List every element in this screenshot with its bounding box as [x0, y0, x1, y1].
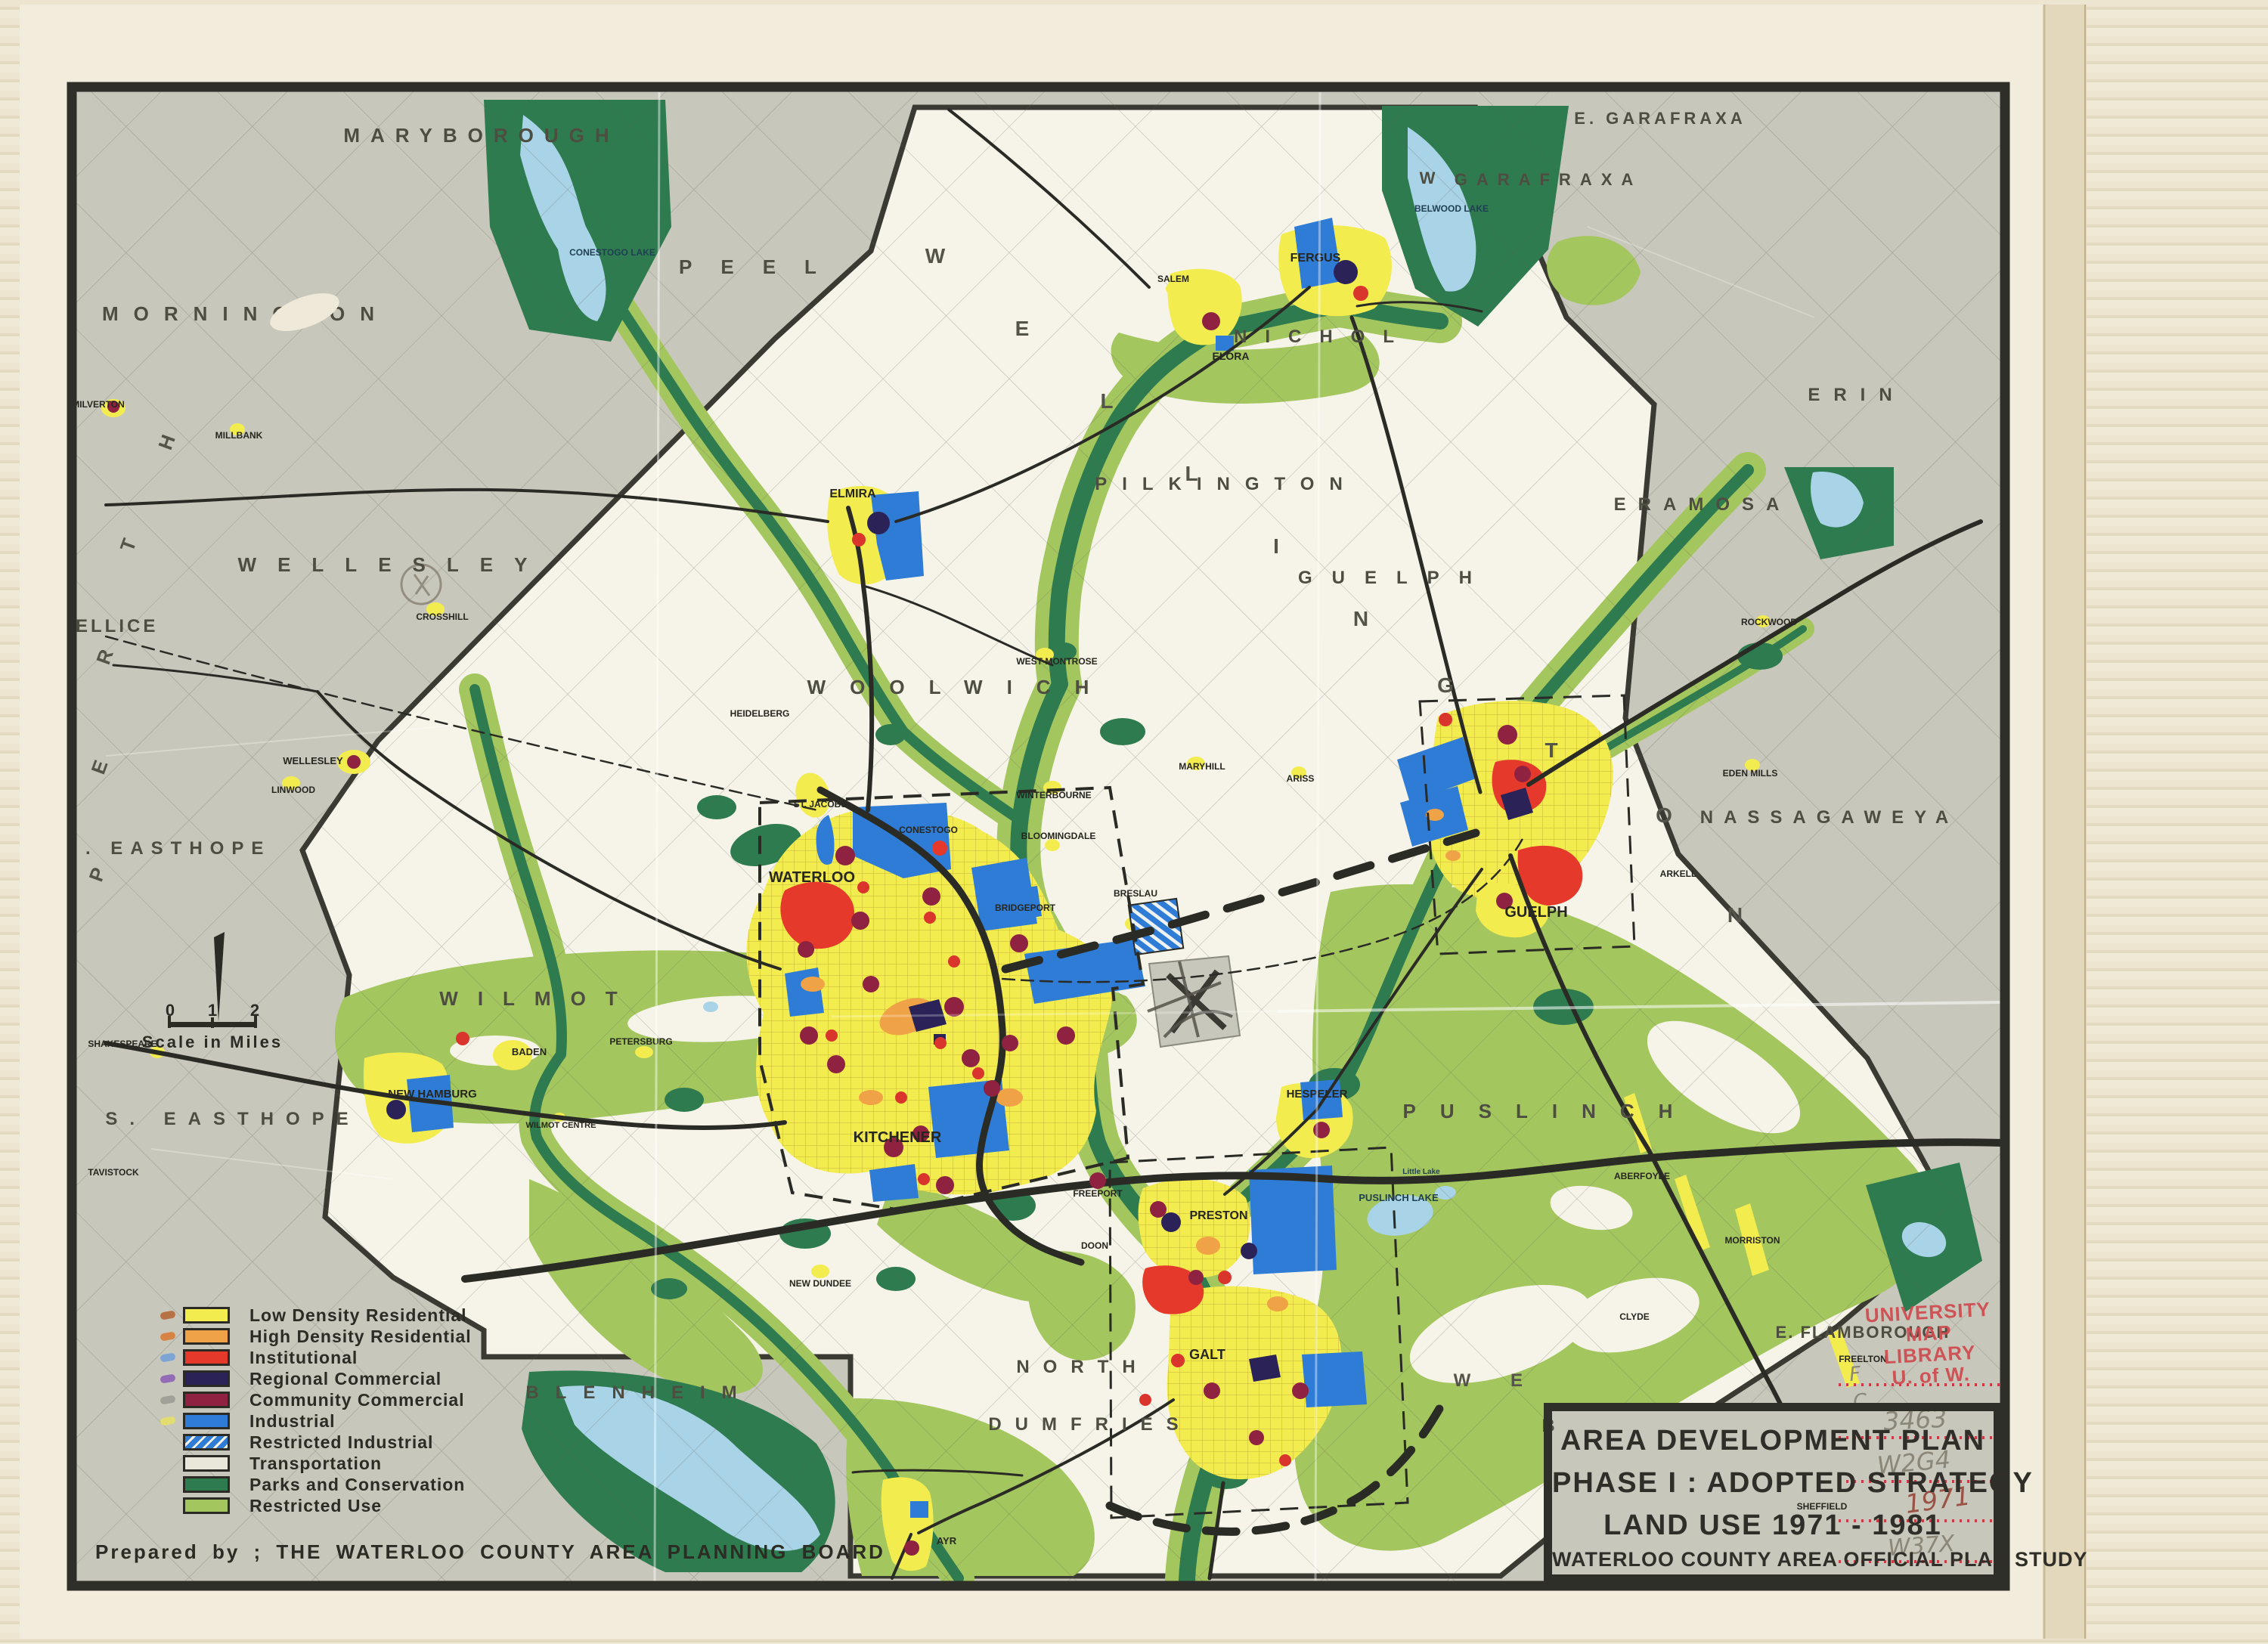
place-label: WINTERBOURNE	[1016, 790, 1091, 800]
legend-item: Restricted Industrial	[160, 1432, 472, 1453]
legend-swatch	[183, 1328, 230, 1345]
title-line-3: LAND USE 1971 - 1981	[1552, 1509, 1994, 1542]
place-label: CONESTOGO	[899, 825, 958, 835]
place-label: ARKELL	[1660, 868, 1697, 879]
place-label: MILLBANK	[215, 430, 263, 441]
township-label: NORTH	[1016, 1357, 1148, 1377]
place-label: HEIDELBERG	[730, 708, 790, 719]
legend-label: Restricted Industrial	[249, 1432, 433, 1453]
crayon-tick	[160, 1310, 175, 1320]
place-label: MILVERTON	[72, 399, 125, 410]
water-label: PUSLINCH LAKE	[1359, 1192, 1439, 1203]
place-label: BLOOMINGDALE	[1021, 831, 1096, 841]
crayon-tick	[160, 1416, 175, 1426]
legend-label: Restricted Use	[249, 1496, 382, 1516]
place-label: WATERLOO	[769, 869, 855, 886]
prepared-by: Prepared by ; THE WATERLOO COUNTY AREA P…	[95, 1540, 885, 1564]
legend-label: Low Density Residential	[249, 1305, 467, 1326]
place-label: MORRISTON	[1724, 1235, 1780, 1246]
library-stamp: UNIVERSITY MAP LIBRARY U. of W.	[1859, 1298, 2000, 1389]
place-label: GALT	[1189, 1347, 1225, 1362]
place-label: WELLESLEY	[283, 755, 343, 766]
place-label: CROSSHILL	[416, 611, 468, 622]
legend-label: Industrial	[249, 1411, 336, 1432]
township-label: DUMFRIES	[988, 1414, 1191, 1435]
legend-item: High Density Residential	[160, 1326, 472, 1347]
paper-fold-strip	[2044, 5, 2087, 1639]
place-label: BRIDGEPORT	[995, 902, 1056, 913]
place-label: AYR	[937, 1535, 957, 1546]
scale-tick: 0	[166, 1001, 175, 1020]
scale-tick: 1	[208, 1001, 217, 1020]
township-label: PEEL	[679, 255, 845, 278]
place-label: PETERSBURG	[609, 1036, 672, 1047]
legend-item: Transportation	[160, 1453, 472, 1474]
place-label: FERGUS	[1290, 252, 1341, 265]
place-label: ROCKWOOD	[1741, 617, 1797, 627]
township-label: W	[1420, 169, 1436, 187]
crayon-tick	[160, 1331, 175, 1341]
legend-item: Low Density Residential	[160, 1305, 472, 1326]
legend-item: Regional Commercial	[160, 1368, 472, 1389]
county-letter: W	[925, 244, 946, 268]
county-letter: N	[1353, 607, 1368, 630]
county-letter: G	[1437, 673, 1454, 697]
legend-label: Institutional	[249, 1348, 358, 1368]
township-label: ERAMOSA	[1614, 494, 1792, 515]
township-label: WELLESLEY	[238, 553, 549, 576]
title-block: AREA DEVELOPMENT PLAN PHASE I : ADOPTED …	[1544, 1403, 2002, 1583]
place-label: GUELPH	[1504, 904, 1567, 921]
place-label: SALEM	[1157, 274, 1189, 284]
scale-tick: 2	[250, 1001, 259, 1020]
title-footer: WATERLOO COUNTY AREA OFFICIAL PLAN STUDY	[1552, 1548, 1994, 1571]
county-letter: E	[1510, 1370, 1523, 1391]
township-label: S. EASTHOPE	[105, 1109, 360, 1129]
place-label: ABERFOYLE	[1614, 1171, 1670, 1181]
township-label: NICHOL	[1234, 327, 1412, 347]
place-label: BRESLAU	[1114, 888, 1157, 899]
county-letter: L	[1100, 389, 1113, 413]
county-letter: O	[1656, 803, 1672, 827]
township-label: PUSLINCH	[1403, 1100, 1697, 1122]
place-label: CLYDE	[1619, 1311, 1650, 1322]
photographed-map-sheet: MARYBOROUGHPEELMORNINGTONELLICEN. EASTHO…	[0, 0, 2268, 1644]
place-label: BADEN	[512, 1046, 547, 1057]
legend-item: Restricted Use	[160, 1495, 472, 1516]
legend-label: Transportation	[249, 1454, 382, 1474]
legend-swatch	[183, 1349, 230, 1366]
crayon-tick	[160, 1352, 175, 1362]
county-letter: L	[1185, 462, 1198, 485]
legend-swatch	[183, 1392, 230, 1408]
township-label: WILMOT	[439, 987, 637, 1010]
township-label: MORNINGTON	[102, 302, 389, 325]
place-label: EDEN MILLS	[1723, 768, 1778, 779]
legend-swatch	[183, 1307, 230, 1324]
legend-swatch	[183, 1497, 230, 1514]
legend: Low Density ResidentialHigh Density Resi…	[160, 1305, 472, 1516]
county-letter: T	[1545, 738, 1557, 762]
township-label: MARYBOROUGH	[343, 124, 619, 147]
place-label: LINWOOD	[271, 785, 315, 795]
water-label: CONESTOGO LAKE	[569, 247, 655, 258]
township-label: NASSAGAWEYA	[1700, 807, 1959, 828]
title-line-1: AREA DEVELOPMENT PLAN	[1552, 1425, 1994, 1457]
place-label: FREEPORT	[1073, 1188, 1123, 1199]
legend-swatch	[183, 1476, 230, 1493]
place-label: TAVISTOCK	[88, 1167, 139, 1178]
county-letter: I	[1273, 534, 1279, 558]
township-label: E. GARAFRAXA	[1574, 109, 1746, 128]
legend-label: Community Commercial	[249, 1390, 465, 1410]
county-letter: N	[1727, 903, 1743, 927]
legend-item: Community Commercial	[160, 1389, 472, 1410]
township-label: ERIN	[1808, 385, 1905, 405]
crayon-tick	[160, 1373, 175, 1383]
township-label: GARAFRAXA	[1455, 170, 1643, 189]
place-label: WEST MONTROSE	[1016, 656, 1097, 667]
county-letter: W	[1454, 1370, 1471, 1391]
stamp-line-2: MAP LIBRARY	[1861, 1319, 1999, 1368]
place-label: DOON	[1081, 1240, 1108, 1251]
legend-item: Institutional	[160, 1347, 472, 1368]
place-label: MARYHILL	[1179, 761, 1225, 772]
place-label: PRESTON	[1189, 1209, 1247, 1222]
place-label: WILMOT CENTRE	[526, 1121, 596, 1130]
legend-label: Regional Commercial	[249, 1369, 442, 1389]
township-label: GUELPH	[1298, 568, 1492, 588]
legend-swatch	[183, 1413, 230, 1429]
township-label: N. EASTHOPE	[65, 838, 271, 859]
legend-item: Industrial	[160, 1410, 472, 1432]
legend-item: Parks and Conservation	[160, 1474, 472, 1495]
place-label: KITCHENER	[854, 1129, 942, 1146]
legend-label: High Density Residential	[249, 1327, 472, 1347]
legend-swatch	[183, 1370, 230, 1387]
title-line-2: PHASE I : ADOPTED STRATEGY	[1552, 1467, 1994, 1500]
legend-label: Parks and Conservation	[249, 1475, 465, 1495]
crayon-tick	[160, 1395, 175, 1404]
township-label: ELLICE	[76, 616, 158, 636]
place-label: ELMIRA	[829, 488, 876, 500]
place-label: ST. JACOBS	[794, 799, 847, 810]
county-letter: E	[1015, 317, 1030, 340]
legend-swatch	[183, 1455, 230, 1472]
legend-swatch	[183, 1434, 230, 1450]
place-label: ARISS	[1287, 773, 1315, 784]
place-label: NEW DUNDEE	[789, 1278, 851, 1289]
township-label: BLENHEIM	[525, 1382, 753, 1403]
place-label: NEW HAMBURG	[388, 1088, 477, 1101]
place-label: ELORA	[1213, 350, 1250, 362]
scale-caption: Scale in Miles	[142, 1033, 283, 1051]
airport-area	[1149, 956, 1240, 1047]
water-label: Little Lake	[1402, 1168, 1440, 1176]
water-label: BELWOOD LAKE	[1414, 203, 1489, 214]
township-label: WOOLWICH	[807, 676, 1114, 698]
